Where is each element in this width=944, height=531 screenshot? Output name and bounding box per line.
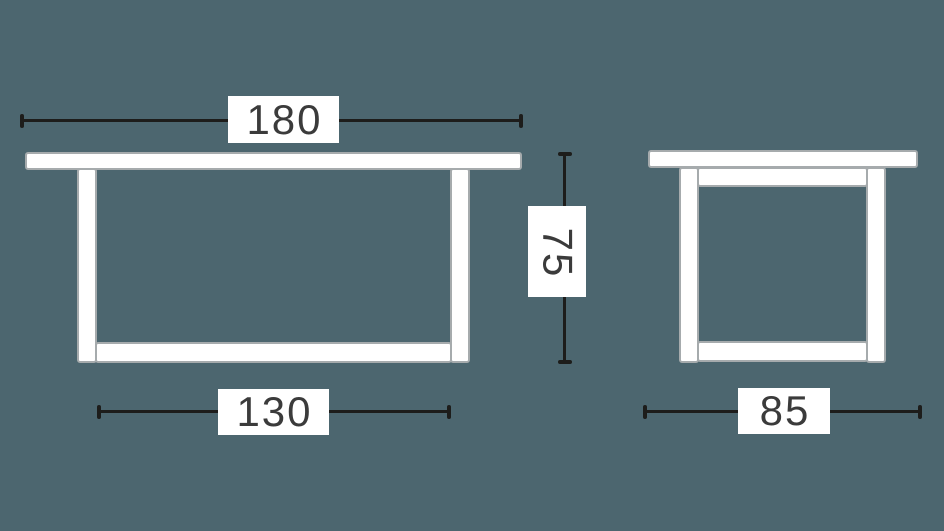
dim-value-front-base-width: 130: [234, 388, 312, 436]
front-bottom-rail: [95, 342, 452, 363]
dim-label-front-width: 180: [228, 96, 339, 143]
dim-value-front-height: 75: [533, 225, 581, 278]
front-left-leg: [77, 168, 97, 363]
dim-value-front-width: 180: [244, 96, 322, 144]
dim-cap-85-right: [918, 405, 922, 419]
side-bottom-rail: [697, 341, 868, 362]
dim-label-side-depth: 85: [738, 388, 830, 434]
dim-cap-85-left: [643, 405, 647, 419]
dim-cap-75-bottom: [558, 360, 572, 364]
dim-cap-130-left: [97, 405, 101, 419]
dim-cap-75-top: [558, 152, 572, 156]
dim-cap-180-left: [20, 114, 24, 128]
side-left-leg: [679, 167, 699, 363]
dim-label-front-height: 75: [528, 206, 586, 297]
front-right-leg: [450, 168, 470, 363]
dim-cap-180-right: [519, 114, 523, 128]
side-right-leg: [866, 167, 886, 363]
dim-cap-130-right: [447, 405, 451, 419]
dim-label-front-base-width: 130: [218, 389, 329, 435]
side-tabletop: [648, 150, 918, 168]
side-top-rail: [697, 167, 868, 187]
dim-value-side-depth: 85: [758, 387, 811, 435]
front-tabletop: [25, 152, 522, 170]
dimension-diagram: 180 75 130 85: [0, 0, 944, 531]
